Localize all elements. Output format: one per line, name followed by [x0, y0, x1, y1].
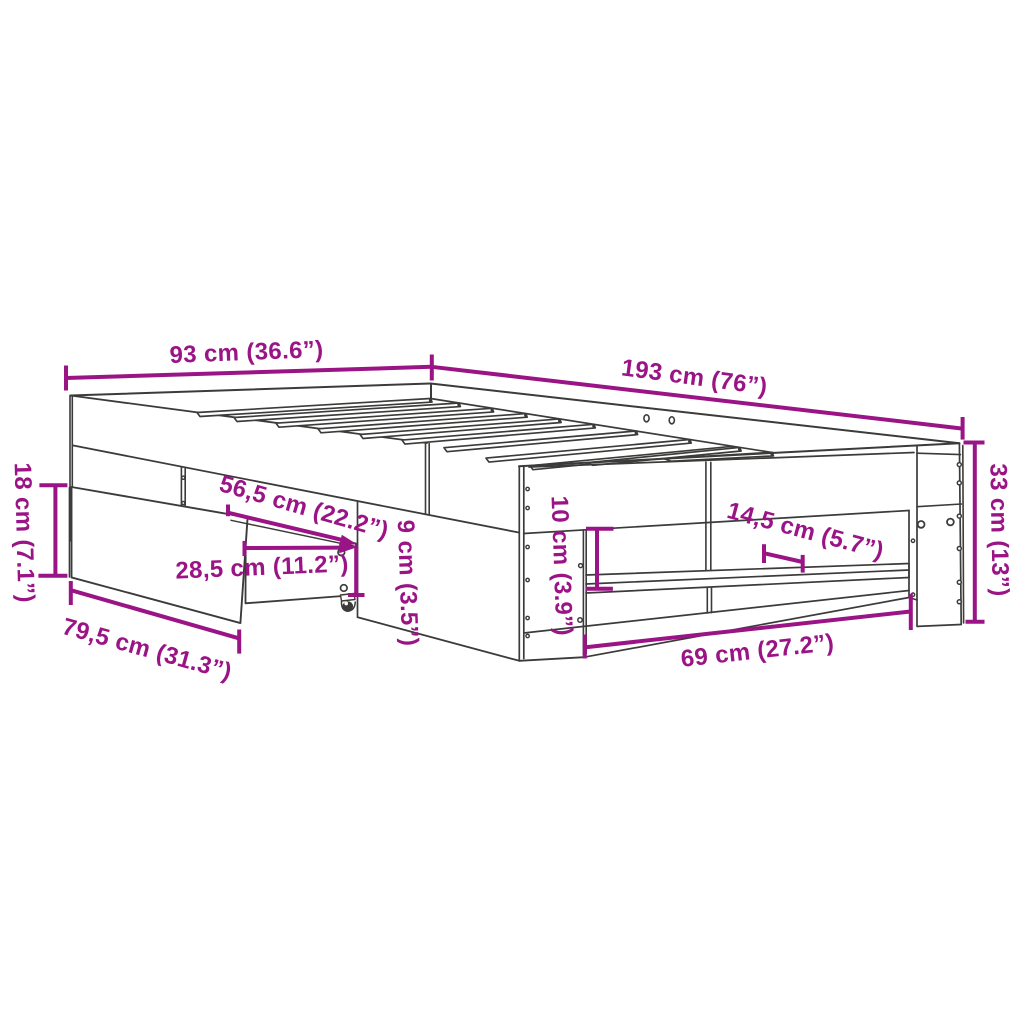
svg-text:9 cm (3.5”): 9 cm (3.5”) — [392, 519, 423, 646]
svg-text:10 cm (3.9”): 10 cm (3.9”) — [546, 495, 578, 636]
svg-text:33 cm (13”): 33 cm (13”) — [984, 463, 1013, 597]
svg-text:18 cm (7.1”): 18 cm (7.1”) — [9, 462, 40, 603]
